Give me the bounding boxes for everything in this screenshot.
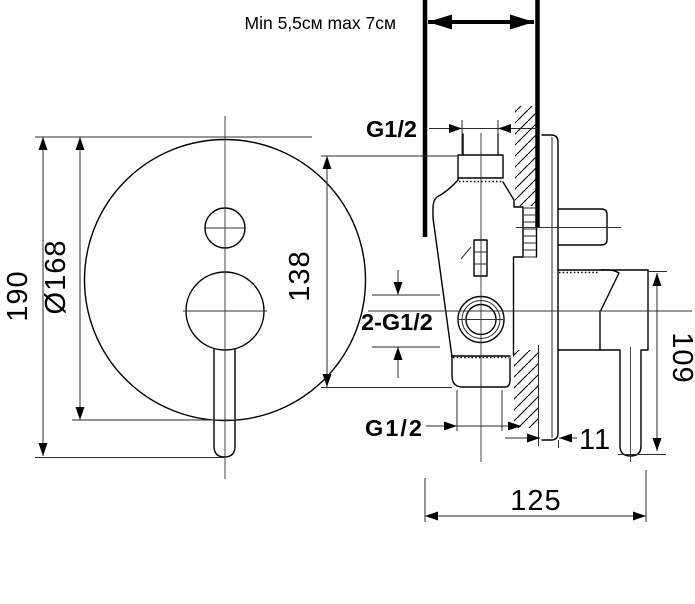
wall-nipple-threads — [523, 208, 537, 257]
dimension-annotations — [35, 120, 667, 522]
front-view — [85, 116, 366, 479]
cartridge-screw — [461, 240, 487, 276]
wall-hatch-upper — [515, 106, 537, 206]
dim-handle-depth: 109 — [666, 332, 695, 383]
dim-total-depth: 125 — [510, 485, 561, 517]
diverter-side — [558, 209, 607, 245]
plate-side — [542, 135, 558, 440]
mixer-valve-drawing: Min 5,5см max 7см G1/2 2-G1/2 G1/2 190 Ø… — [0, 0, 695, 604]
dim-overall-height: 190 — [2, 270, 34, 321]
label-depth-note: Min 5,5см max 7см — [245, 13, 396, 33]
body-left-profile — [433, 180, 458, 357]
wall-hatch-lower — [514, 350, 538, 428]
dim-center-height: 138 — [284, 250, 316, 301]
arrow-left-icon — [428, 15, 452, 30]
label-top-thread: G1/2 — [366, 116, 417, 142]
arrow-right-icon — [510, 15, 534, 30]
technical-drawing-page: Min 5,5см max 7см G1/2 2-G1/2 G1/2 190 Ø… — [0, 0, 695, 604]
label-side-threads: 2-G1/2 — [361, 309, 433, 335]
handle-lever-front — [214, 349, 235, 457]
body-right-profile — [503, 182, 523, 356]
upper-port — [458, 155, 503, 180]
label-bottom-thread: G1/2 — [365, 415, 424, 441]
dim-plate-diameter: Ø168 — [40, 240, 72, 315]
dim-plate-offset: 11 — [579, 424, 611, 456]
wall-section — [425, 0, 539, 446]
